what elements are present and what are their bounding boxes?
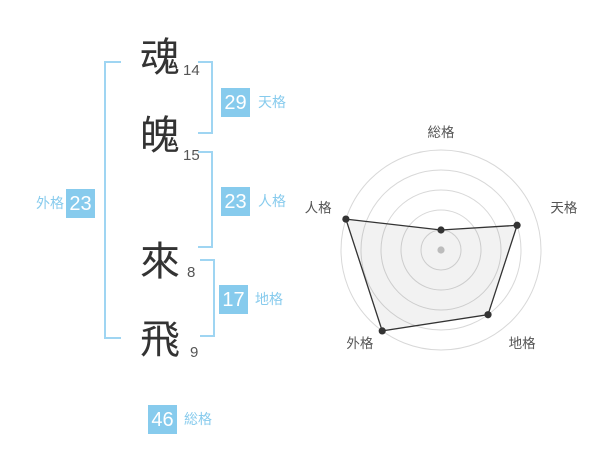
radar-axis-label-天格: 天格 bbox=[550, 201, 577, 216]
radar-point-外格 bbox=[379, 327, 386, 334]
chikaku-label: 地格 bbox=[255, 292, 283, 306]
radar-axis-label-総格: 総格 bbox=[428, 125, 455, 140]
radar-point-地格 bbox=[484, 311, 491, 318]
radar-axis-label-外格: 外格 bbox=[346, 336, 373, 351]
radar-point-総格 bbox=[437, 226, 444, 233]
jinkaku-label: 人格 bbox=[258, 194, 286, 208]
jinkaku-score-badge: 23 bbox=[221, 187, 250, 216]
gaikaku-bracket bbox=[104, 61, 121, 339]
radar-axis-label-人格: 人格 bbox=[305, 201, 332, 216]
gaikaku-score-badge: 23 bbox=[66, 189, 95, 218]
jinkaku-bracket bbox=[198, 151, 213, 248]
radar-point-人格 bbox=[342, 215, 349, 222]
tenkaku-bracket bbox=[198, 61, 213, 134]
name-analysis-panel: 魂 魄 來 飛 14 15 8 9 29 天格 23 人格 17 地格 外格 2… bbox=[0, 0, 600, 470]
tenkaku-score-badge: 29 bbox=[221, 88, 250, 117]
chikaku-bracket bbox=[200, 259, 215, 337]
given-char-2: 飛 bbox=[132, 320, 188, 360]
radar-chart: 総格天格地格外格人格 bbox=[301, 110, 581, 390]
gaikaku-label: 外格 bbox=[36, 196, 64, 210]
tenkaku-label: 天格 bbox=[258, 95, 286, 109]
given-char-1: 來 bbox=[132, 242, 188, 282]
surname-char-1: 魂 bbox=[132, 38, 188, 78]
chikaku-score-badge: 17 bbox=[219, 285, 248, 314]
radar-axis-label-地格: 地格 bbox=[509, 336, 536, 351]
radar-point-天格 bbox=[513, 222, 520, 229]
stroke-count-4: 9 bbox=[190, 345, 198, 360]
soukaku-label: 総格 bbox=[184, 412, 212, 426]
soukaku-score-badge: 46 bbox=[148, 405, 177, 434]
surname-char-2: 魄 bbox=[132, 116, 188, 156]
stroke-count-3: 8 bbox=[187, 265, 195, 280]
